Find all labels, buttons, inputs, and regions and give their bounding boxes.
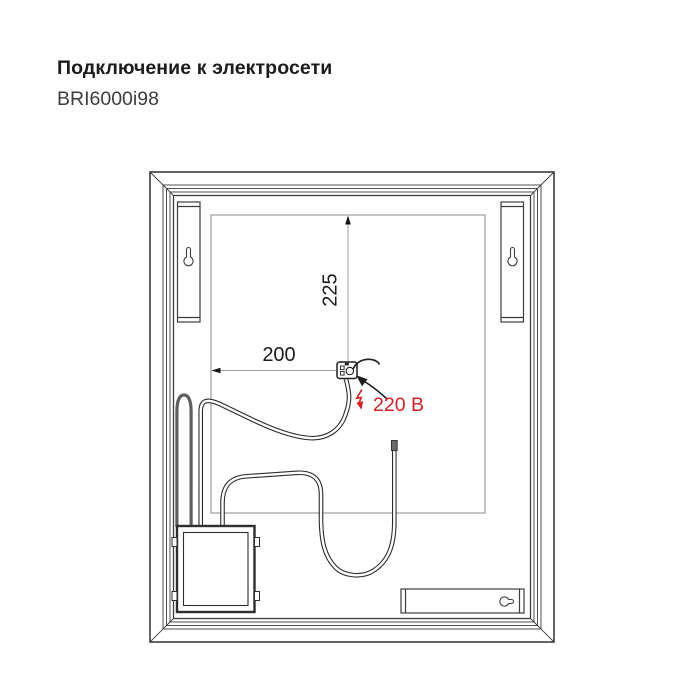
pointer-arrow-icon [356, 375, 367, 386]
dimension-label-vertical: 225 [320, 273, 343, 306]
lightning-icon [356, 390, 363, 410]
page: Подключение к электросети BRI6000i98 [0, 0, 700, 700]
plug-icon [346, 367, 353, 374]
mounting-plate-top-right [501, 202, 524, 322]
stripped-wire-tip [391, 441, 397, 451]
mounting-plate-bottom-right [401, 589, 524, 613]
mounting-plate-top-left [178, 202, 201, 322]
arrow-up-icon [345, 216, 351, 225]
mirror-back-diagram [0, 0, 700, 700]
dimension-label-horizontal: 200 [262, 344, 295, 367]
arrow-left-icon [212, 368, 221, 374]
voltage-label: 220 В [373, 394, 424, 417]
mains-cable-gray [177, 395, 191, 527]
junction-box [172, 526, 260, 612]
